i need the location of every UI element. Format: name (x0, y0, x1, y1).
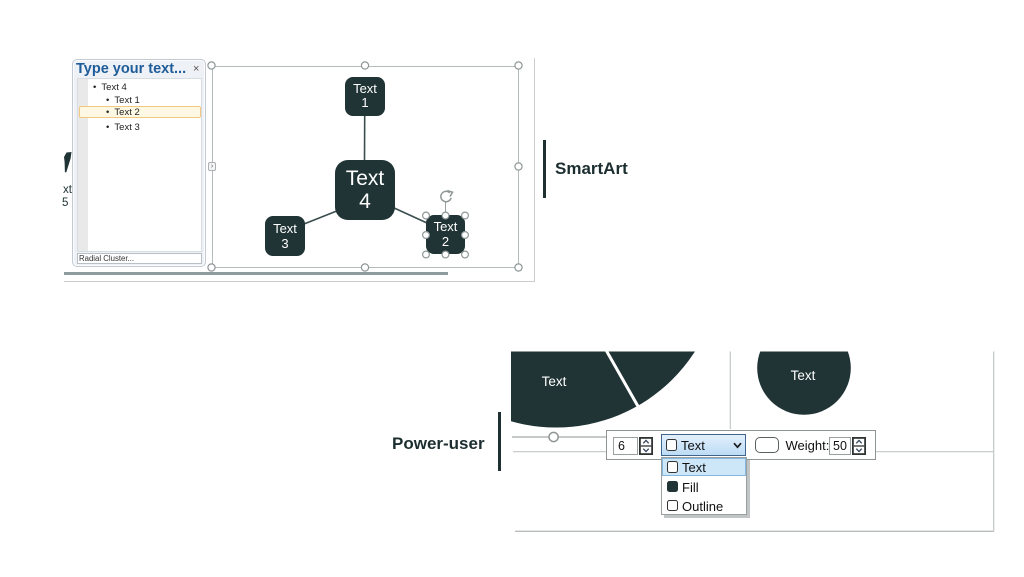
svg-text:Text: Text (791, 368, 816, 383)
svg-text:Text: Text (542, 374, 567, 389)
